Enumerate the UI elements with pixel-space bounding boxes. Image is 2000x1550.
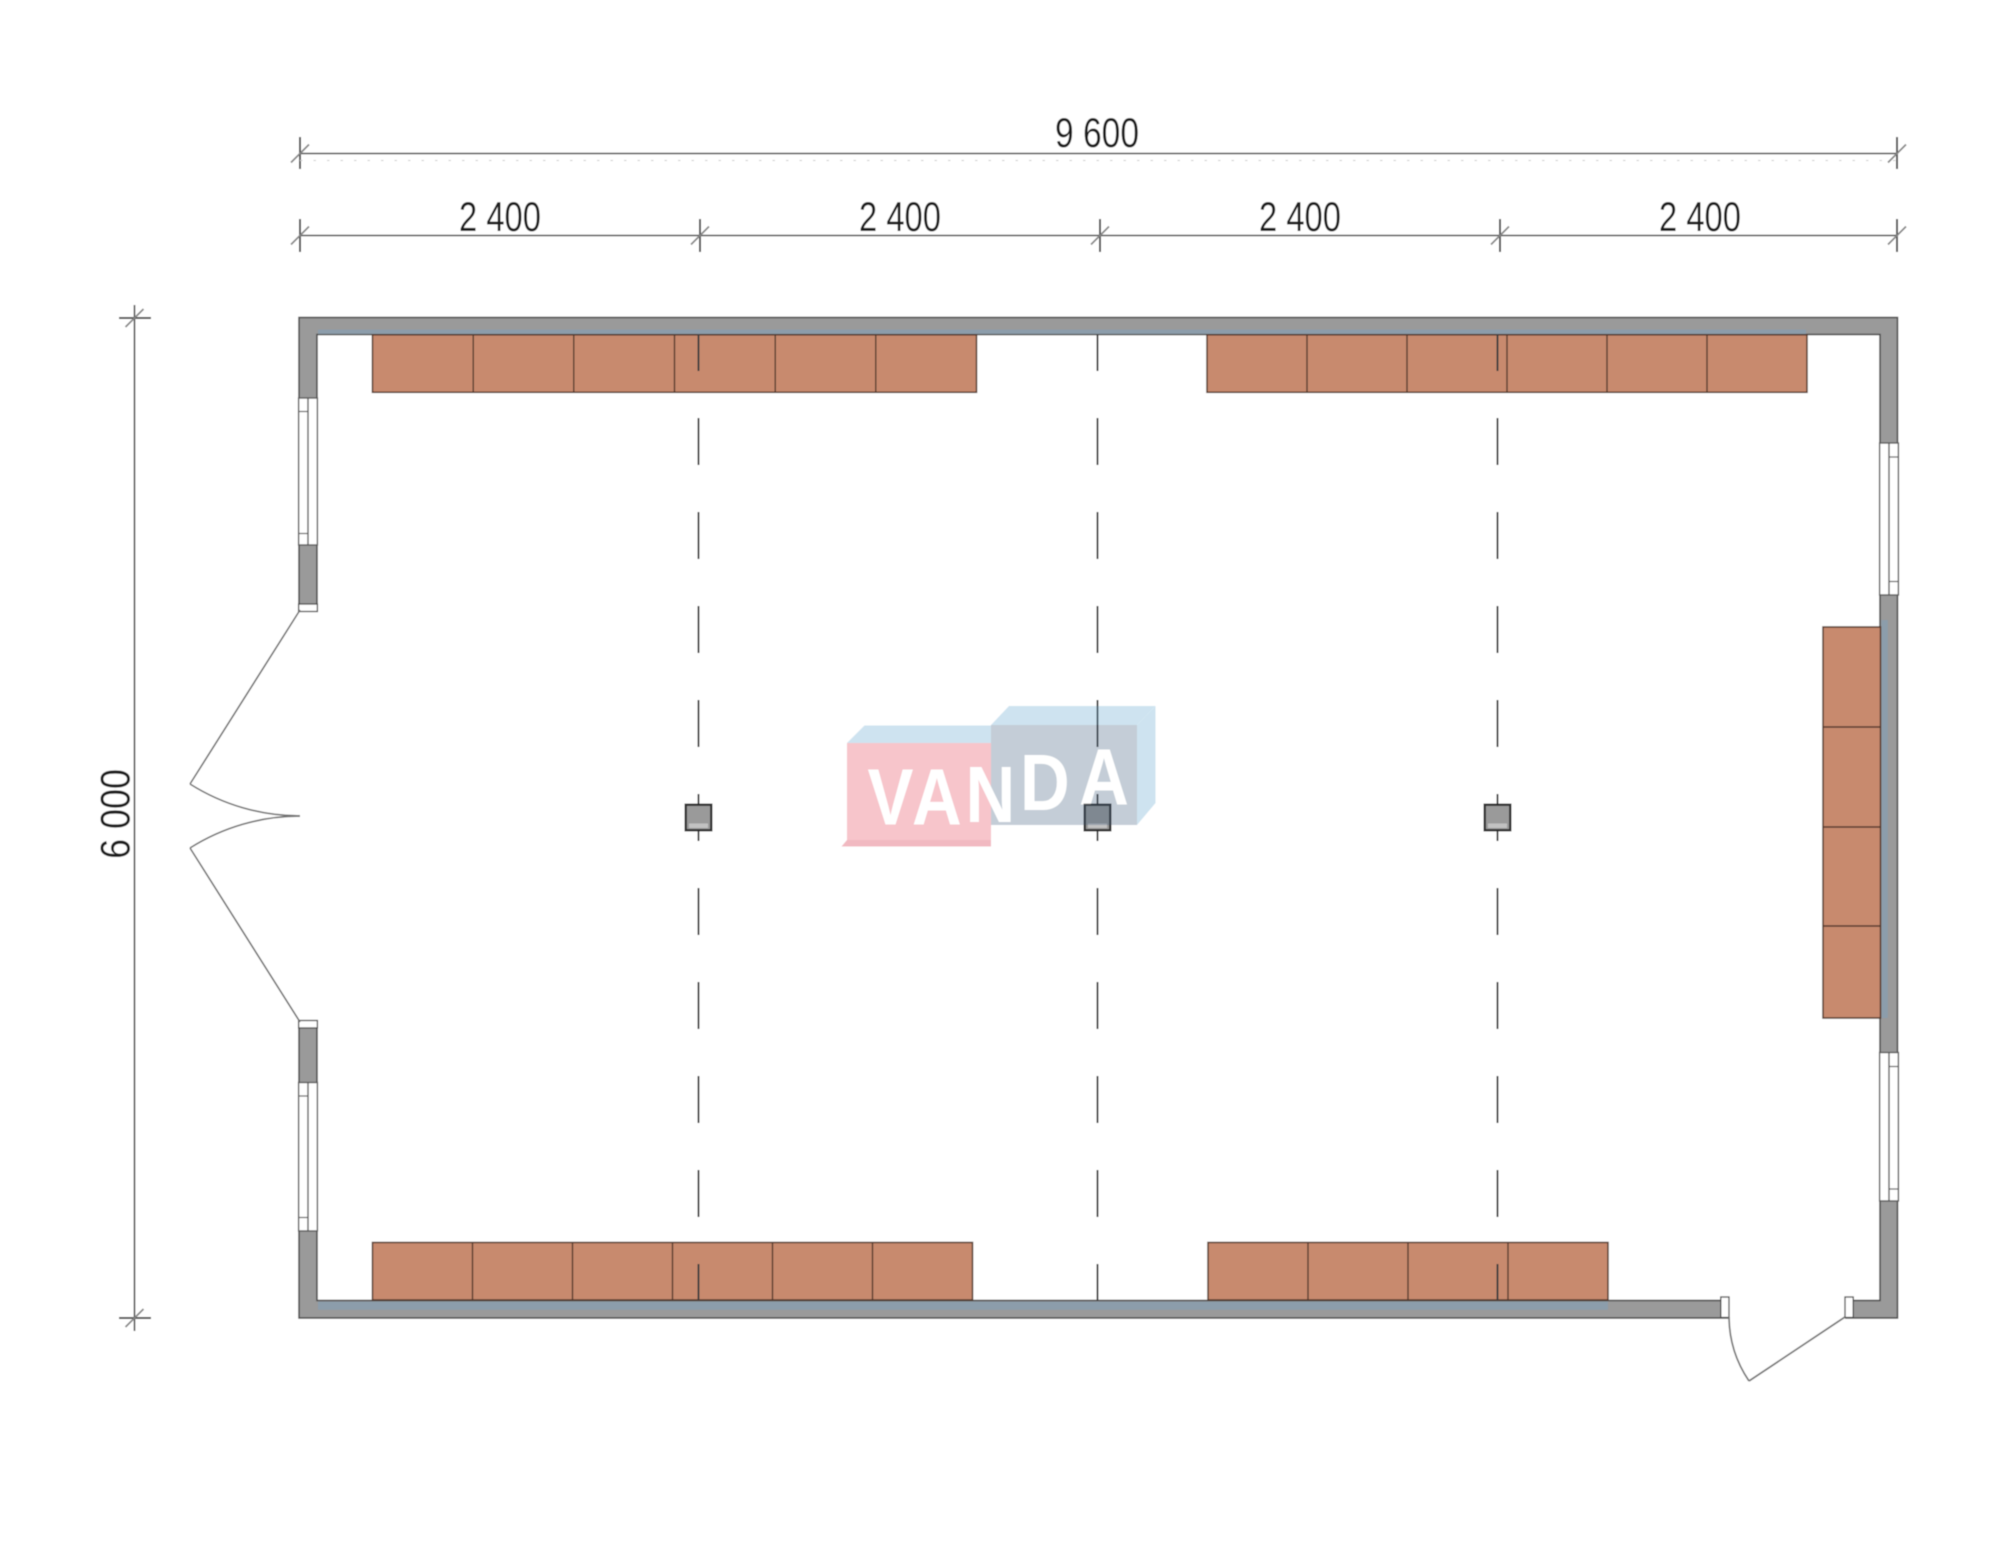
svg-text:2 400: 2 400 xyxy=(1659,193,1741,240)
svg-text:2 400: 2 400 xyxy=(1259,193,1341,240)
svg-text:D: D xyxy=(1020,737,1070,827)
svg-text:A: A xyxy=(1079,732,1129,822)
svg-text:V: V xyxy=(867,751,913,841)
svg-text:6 000: 6 000 xyxy=(93,769,139,859)
svg-text:2 400: 2 400 xyxy=(459,193,541,240)
svg-text:A: A xyxy=(912,751,962,841)
svg-text:9 600: 9 600 xyxy=(1055,111,1139,157)
svg-text:N: N xyxy=(966,749,1016,839)
svg-text:2 400: 2 400 xyxy=(859,193,941,240)
